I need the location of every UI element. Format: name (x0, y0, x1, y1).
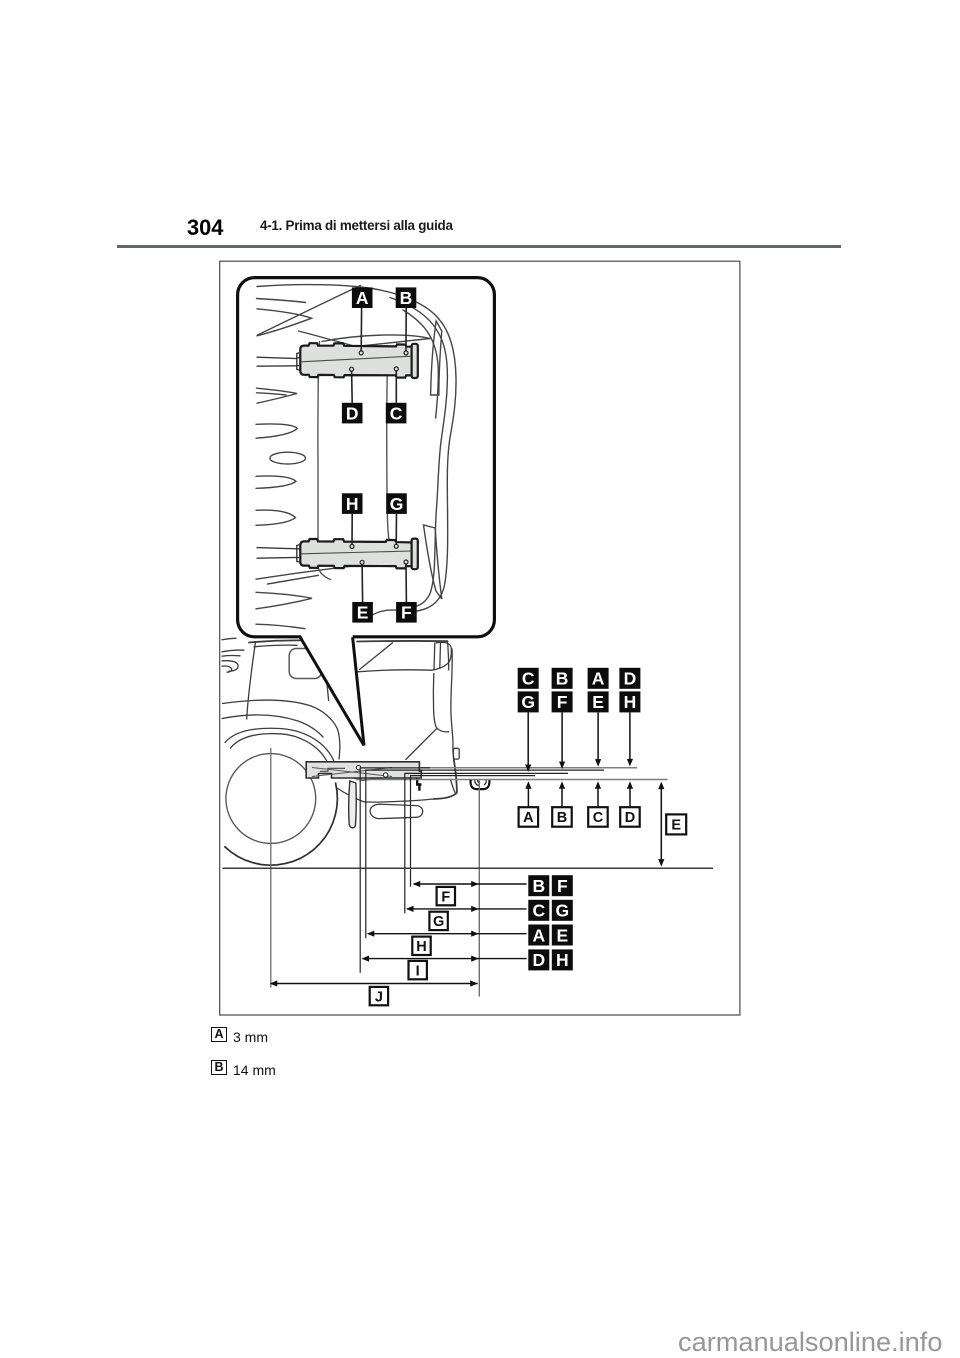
svg-text:I: I (416, 963, 420, 979)
svg-text:D: D (624, 669, 637, 689)
svg-text:C: C (532, 901, 545, 921)
svg-text:B: B (532, 876, 545, 896)
svg-text:D: D (346, 403, 359, 423)
svg-text:C: C (593, 810, 604, 826)
svg-text:B: B (400, 288, 413, 308)
svg-text:E: E (592, 692, 604, 712)
svg-text:C: C (390, 403, 403, 423)
svg-text:B: B (556, 669, 569, 689)
svg-text:G: G (390, 494, 404, 514)
svg-text:E: E (671, 818, 681, 834)
svg-text:H: H (556, 950, 569, 970)
svg-text:H: H (416, 939, 426, 955)
svg-text:G: G (433, 914, 444, 930)
svg-text:A: A (523, 810, 534, 826)
svg-text:F: F (401, 603, 412, 623)
svg-text:D: D (532, 950, 545, 970)
svg-text:A: A (592, 669, 605, 689)
svg-text:J: J (375, 989, 383, 1005)
svg-text:G: G (555, 901, 569, 921)
svg-text:H: H (346, 494, 359, 514)
svg-text:D: D (625, 810, 635, 826)
svg-text:H: H (624, 692, 637, 712)
svg-text:E: E (357, 603, 369, 623)
svg-text:B: B (557, 810, 567, 826)
svg-text:C: C (522, 669, 535, 689)
svg-text:A: A (356, 288, 369, 308)
svg-text:F: F (557, 876, 568, 896)
svg-text:A: A (532, 925, 545, 945)
svg-text:F: F (441, 889, 450, 905)
svg-text:G: G (521, 692, 535, 712)
svg-text:E: E (556, 925, 568, 945)
svg-text:F: F (557, 692, 568, 712)
